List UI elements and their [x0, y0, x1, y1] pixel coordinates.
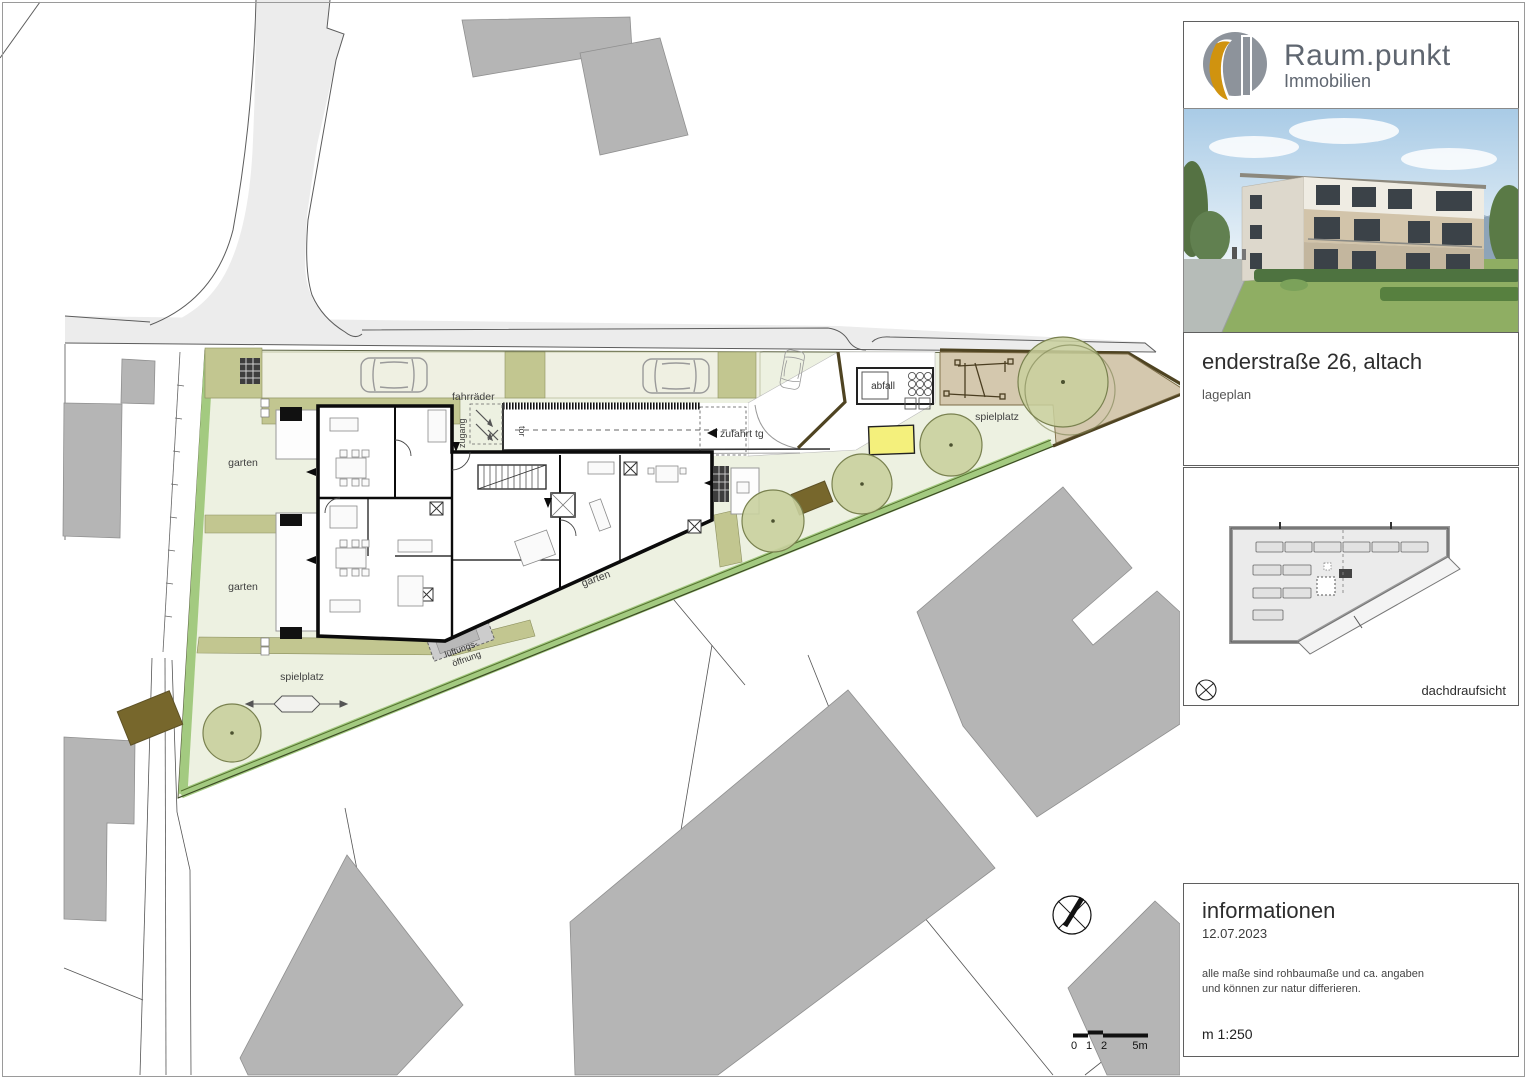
waste-area: abfall	[857, 368, 933, 409]
info-heading: informationen	[1202, 898, 1500, 924]
project-title: enderstraße 26, altach	[1202, 349, 1500, 375]
drawing-type: lageplan	[1202, 387, 1500, 402]
label-zugang: zugang	[457, 418, 467, 448]
roof-plan-panel: dachdraufsicht	[1183, 467, 1519, 706]
info-panel: informationen 12.07.2023 alle maße sind …	[1183, 883, 1519, 1057]
scale-1: 1	[1086, 1040, 1092, 1052]
title-panel: enderstraße 26, altach lageplan	[1183, 332, 1519, 466]
north-compass-icon	[1053, 896, 1091, 934]
bench-brown	[117, 691, 182, 745]
roof-caption: dachdraufsicht	[1421, 683, 1506, 698]
plan-sheet: abfall lüftungs- öffnung	[0, 0, 1527, 1080]
scale-5m: 5m	[1132, 1040, 1147, 1052]
brand-name: Raum.punkt	[1284, 39, 1451, 73]
staircase	[478, 465, 546, 489]
label-spielplatz-2: spielplatz	[975, 411, 1019, 423]
building-photo	[1183, 108, 1519, 333]
logo-panel: Raum.punkt Immobilien	[1183, 21, 1519, 110]
label-fahrraeder: fahrräder	[452, 391, 495, 403]
brand-subtitle: Immobilien	[1284, 71, 1451, 92]
label-garten-2: garten	[228, 581, 258, 593]
label-spielplatz-1: spielplatz	[280, 671, 324, 683]
sandbox-yellow	[869, 425, 915, 455]
elevator	[551, 493, 575, 517]
info-note-line2: und können zur natur differieren.	[1202, 982, 1500, 997]
north-symbol-icon	[1196, 680, 1216, 700]
scale-2: 2	[1101, 1040, 1107, 1052]
info-date: 12.07.2023	[1202, 926, 1500, 941]
raumpunkt-logo-icon	[1198, 30, 1270, 102]
fence-line	[163, 352, 184, 652]
trellis-icon	[713, 466, 729, 502]
label-zufahrt-tg: zufahrt tg	[720, 428, 764, 440]
site-plan-drawing: abfall lüftungs- öffnung	[0, 0, 1180, 1080]
drawing-scale: m 1:250	[1202, 1026, 1253, 1042]
label-abfall: abfall	[871, 381, 895, 392]
label-tor: tor	[517, 426, 527, 437]
label-garten-1: garten	[228, 457, 258, 469]
scale-0: 0	[1071, 1040, 1077, 1052]
info-note-line1: alle maße sind rohbaumaße und ca. angabe…	[1202, 967, 1500, 982]
